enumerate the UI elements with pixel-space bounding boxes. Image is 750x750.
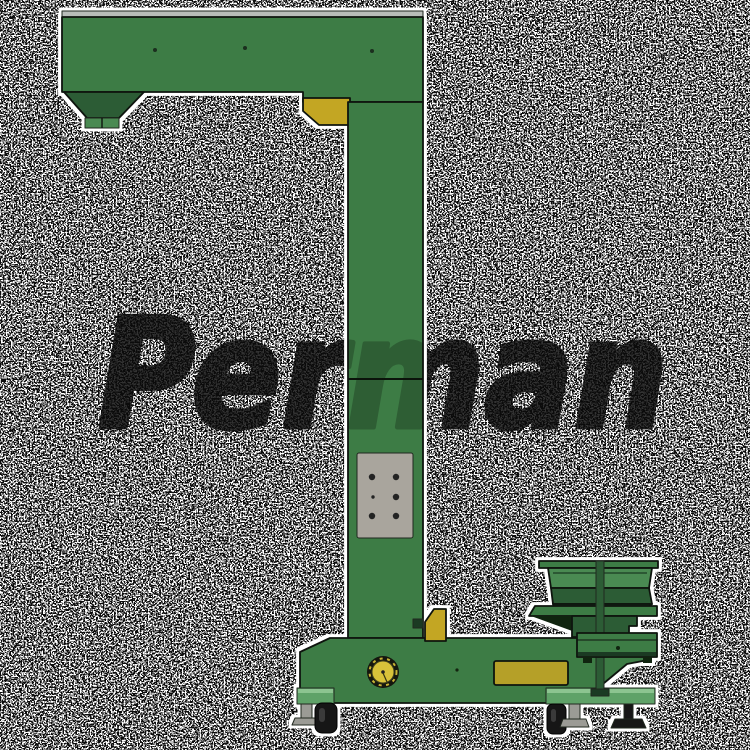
panel-bolt: [393, 494, 399, 500]
base-yellow-plate: [494, 661, 568, 685]
left-foot-bracket-highlight: [298, 689, 333, 693]
feeder-rod-pad: [591, 689, 609, 696]
feeder-foot: [583, 657, 592, 663]
feeder-box-bottom-strip: [578, 652, 656, 656]
panel-bolt: [393, 513, 399, 519]
access-panel: [357, 453, 413, 538]
feeder-box-bolt: [616, 646, 620, 650]
panel-bolt: [371, 495, 374, 498]
product-image: Perman Perman: [0, 0, 750, 750]
feeder-foot: [643, 657, 652, 663]
boom-bolt: [370, 49, 374, 53]
base-bolt: [455, 668, 458, 671]
panel-bolt: [369, 513, 375, 519]
boom-body: [62, 17, 423, 102]
panel-bolt: [393, 474, 399, 480]
boom-bolt: [243, 46, 247, 50]
left-caster-wheel: [315, 703, 337, 733]
scene: Perman Perman: [0, 0, 750, 750]
feeder-support-rod: [596, 561, 604, 692]
panel-bolt: [369, 474, 375, 480]
feeder-mid-flange: [529, 606, 657, 616]
drive-pulley: [367, 656, 399, 688]
boom-bolt: [153, 48, 157, 52]
column-side-bracket: [413, 619, 423, 628]
